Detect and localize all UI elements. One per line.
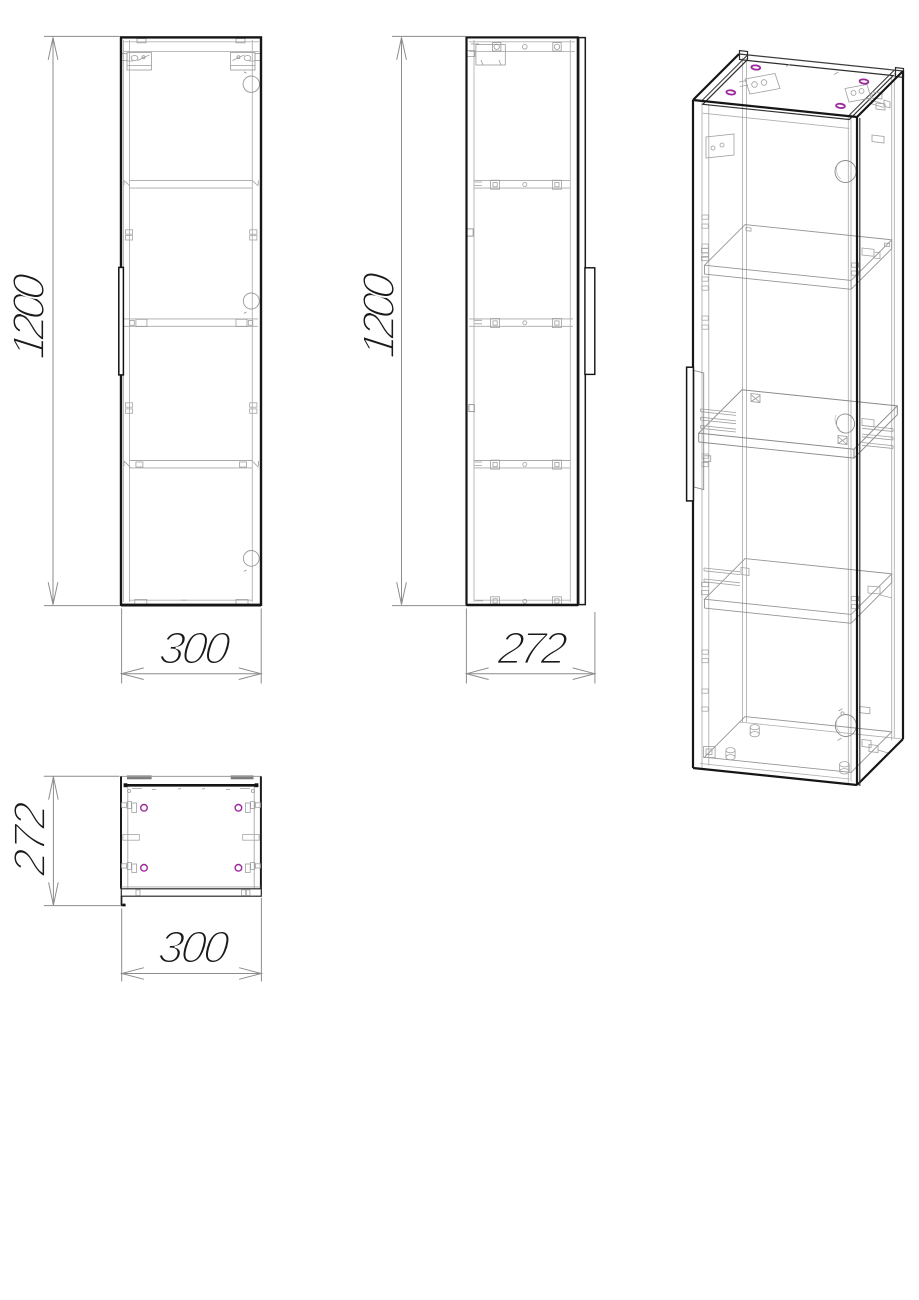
svg-text:272: 272 bbox=[495, 623, 570, 674]
svg-text:300: 300 bbox=[157, 623, 233, 674]
svg-text:272: 272 bbox=[4, 799, 55, 878]
svg-text:1200: 1200 bbox=[353, 270, 404, 360]
svg-text:300: 300 bbox=[156, 922, 232, 973]
svg-text:1200: 1200 bbox=[3, 271, 54, 361]
